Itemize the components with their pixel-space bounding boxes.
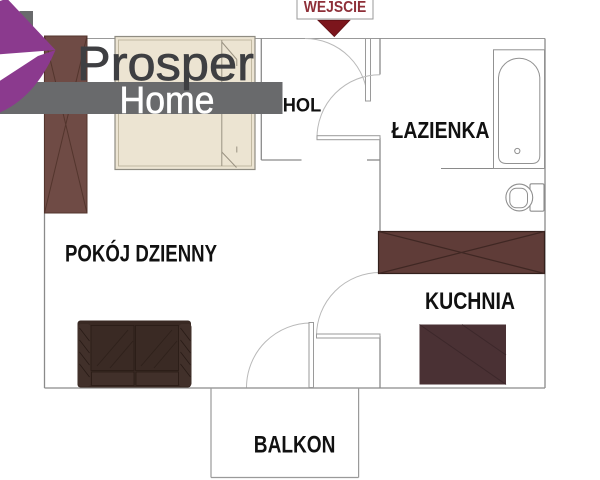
- svg-text:Home: Home: [120, 80, 215, 122]
- svg-text:BALKON: BALKON: [254, 432, 336, 459]
- svg-text:ŁAZIENKA: ŁAZIENKA: [392, 117, 490, 143]
- svg-text:WEJSCIE: WEJSCIE: [304, 0, 367, 16]
- svg-text:HOL: HOL: [283, 95, 322, 117]
- svg-text:KUCHNIA: KUCHNIA: [425, 288, 515, 315]
- svg-text:POKÓJ DZIENNY: POKÓJ DZIENNY: [65, 239, 217, 267]
